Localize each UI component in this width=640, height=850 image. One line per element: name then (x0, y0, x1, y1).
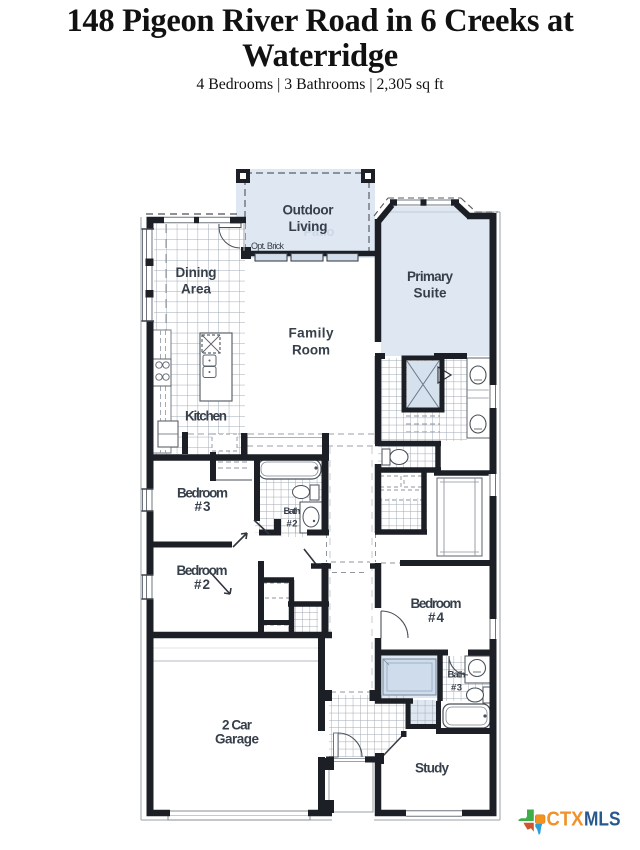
svg-text:Dining: Dining (176, 265, 217, 280)
svg-text:Family: Family (289, 326, 334, 341)
svg-text:Opt. Brick: Opt. Brick (251, 241, 285, 251)
svg-text:#4: #4 (428, 610, 444, 625)
svg-text:Bath: Bath (284, 506, 301, 517)
svg-text:Bedroom: Bedroom (177, 563, 228, 578)
svg-text:#3: #3 (451, 683, 462, 694)
svg-text:#3: #3 (195, 499, 211, 514)
svg-text:Living: Living (289, 219, 328, 234)
svg-text:#2: #2 (287, 519, 298, 530)
svg-text:Study: Study (415, 761, 449, 776)
svg-text:Area: Area (181, 282, 211, 297)
svg-text:Room: Room (292, 343, 330, 358)
svg-text:2 Car: 2 Car (222, 718, 253, 733)
svg-text:MLS: MLS (584, 809, 621, 831)
svg-text:Bath: Bath (448, 670, 466, 681)
svg-text:#2: #2 (194, 577, 210, 592)
svg-text:CTX: CTX (547, 809, 585, 831)
svg-text:Suite: Suite (414, 286, 447, 301)
svg-text:Outdoor: Outdoor (283, 203, 335, 218)
svg-text:Kitchen: Kitchen (185, 409, 227, 424)
svg-text:Primary: Primary (407, 269, 453, 284)
svg-text:Garage: Garage (215, 732, 259, 747)
svg-text:Bedroom: Bedroom (411, 596, 462, 611)
